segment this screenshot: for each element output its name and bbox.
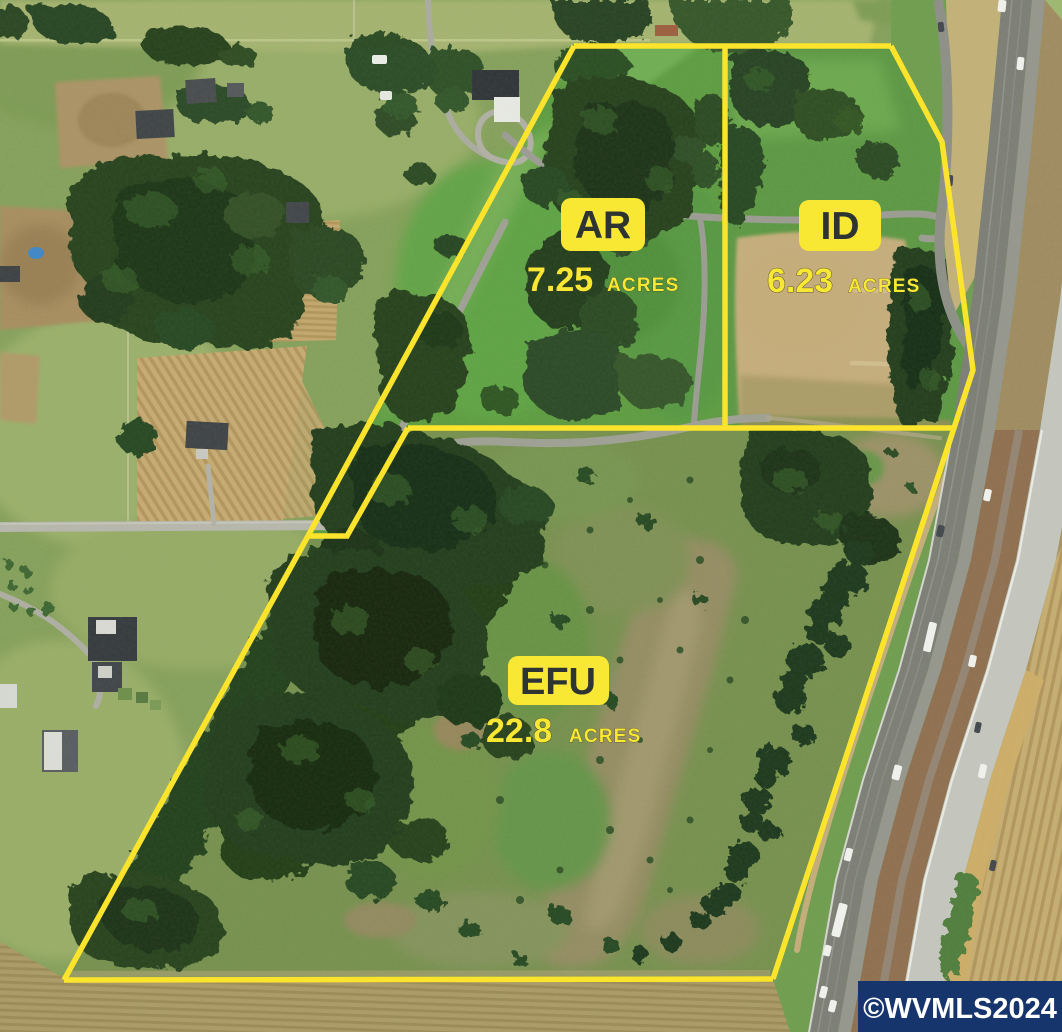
svg-text:6.23: 6.23 xyxy=(767,262,833,300)
svg-text:7.25: 7.25 xyxy=(527,261,593,299)
svg-text:©WVMLS2024: ©WVMLS2024 xyxy=(863,993,1057,1025)
svg-text:ACRES: ACRES xyxy=(607,275,680,296)
svg-text:ACRES: ACRES xyxy=(848,276,921,297)
svg-text:ACRES: ACRES xyxy=(569,726,642,747)
svg-text:AR: AR xyxy=(575,204,631,247)
svg-text:ID: ID xyxy=(821,205,860,248)
svg-text:22.8: 22.8 xyxy=(486,712,552,750)
svg-text:EFU: EFU xyxy=(520,661,596,703)
